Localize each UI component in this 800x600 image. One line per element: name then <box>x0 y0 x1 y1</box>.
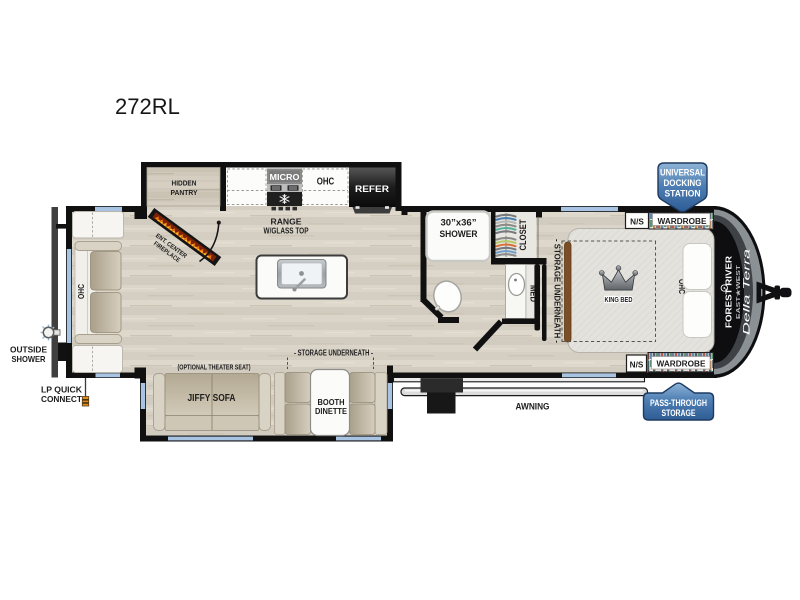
svg-text:SHOWER: SHOWER <box>12 354 46 364</box>
svg-text:N/S: N/S <box>630 218 644 227</box>
svg-text:OHC: OHC <box>317 177 335 188</box>
svg-text:- STORAGE UNDERNEATH -: - STORAGE UNDERNEATH - <box>553 239 562 343</box>
svg-text:272RL: 272RL <box>115 94 180 119</box>
svg-text:STORAGE: STORAGE <box>662 408 696 418</box>
svg-text:Della Terra: Della Terra <box>742 249 753 335</box>
svg-text:STATION: STATION <box>665 189 701 199</box>
svg-text:- STORAGE UNDERNEATH -: - STORAGE UNDERNEATH - <box>294 349 373 358</box>
svg-text:UNIVERSAL: UNIVERSAL <box>660 168 705 178</box>
svg-text:DINETTE: DINETTE <box>315 407 348 416</box>
svg-text:OHC: OHC <box>76 284 86 299</box>
svg-text:JIFFY SOFA: JIFFY SOFA <box>188 393 236 404</box>
svg-text:LP QUICK: LP QUICK <box>41 385 82 395</box>
svg-text:PANTRY: PANTRY <box>171 188 198 197</box>
svg-text:KING BED: KING BED <box>605 295 634 304</box>
svg-text:PASS-THROUGH: PASS-THROUGH <box>650 398 707 408</box>
svg-text:BOOTH: BOOTH <box>318 398 345 407</box>
svg-text:WARDROBE: WARDROBE <box>657 359 706 369</box>
svg-text:W/GLASS TOP: W/GLASS TOP <box>264 226 309 236</box>
svg-text:WARDROBE: WARDROBE <box>658 216 707 226</box>
svg-text:DOCKING: DOCKING <box>664 178 702 188</box>
svg-text:AWNING: AWNING <box>516 402 550 412</box>
svg-text:N/S: N/S <box>630 361 644 370</box>
svg-text:SHOWER: SHOWER <box>440 228 478 239</box>
svg-text:CONNECT: CONNECT <box>41 394 83 404</box>
svg-text:REFER: REFER <box>355 183 389 194</box>
svg-text:FOREST RIVER: FOREST RIVER <box>724 256 734 328</box>
svg-text:HIDDEN: HIDDEN <box>172 179 197 188</box>
svg-text:(OPTIONAL THEATER SEAT): (OPTIONAL THEATER SEAT) <box>178 363 251 372</box>
svg-text:MICRO: MICRO <box>270 172 300 182</box>
svg-text:30”x36”: 30”x36” <box>441 217 477 228</box>
svg-text:CLOSET: CLOSET <box>518 219 528 250</box>
